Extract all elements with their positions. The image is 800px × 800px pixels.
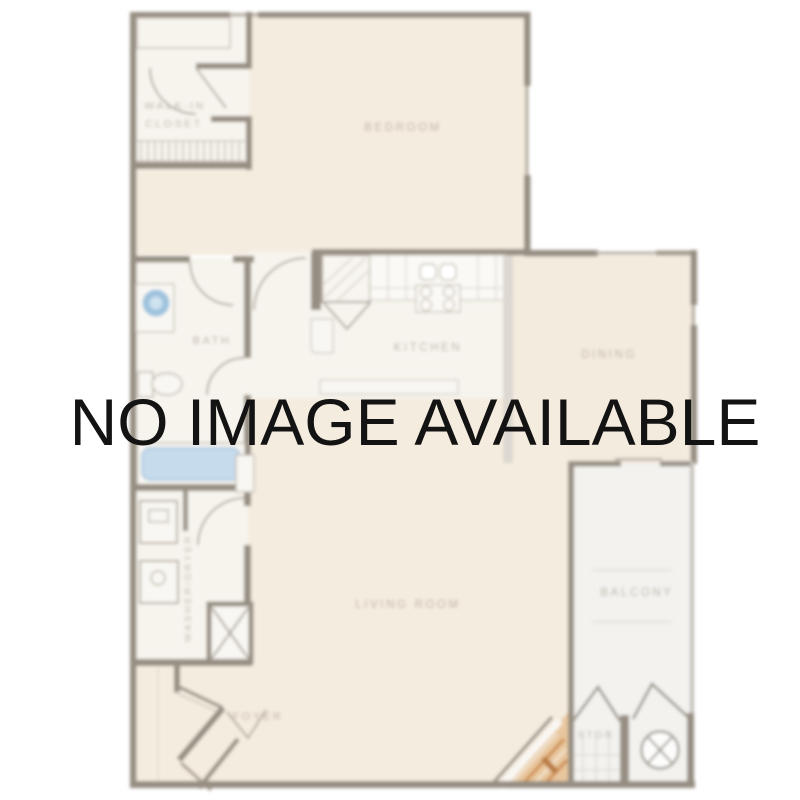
svg-text:KITCHEN: KITCHEN xyxy=(394,342,463,354)
svg-text:DINING: DINING xyxy=(581,349,637,361)
svg-text:WALK-IN: WALK-IN xyxy=(144,100,206,112)
svg-text:CLOSET: CLOSET xyxy=(145,118,203,130)
svg-text:BATH: BATH xyxy=(193,335,232,347)
svg-text:LIVING ROOM: LIVING ROOM xyxy=(355,599,460,611)
svg-text:WASHER/DRYER: WASHER/DRYER xyxy=(183,534,194,642)
svg-text:BALCONY: BALCONY xyxy=(600,587,673,599)
svg-text:BEDROOM: BEDROOM xyxy=(364,122,442,134)
svg-text:STOR: STOR xyxy=(578,730,615,741)
svg-text:FOYER: FOYER xyxy=(233,711,284,723)
